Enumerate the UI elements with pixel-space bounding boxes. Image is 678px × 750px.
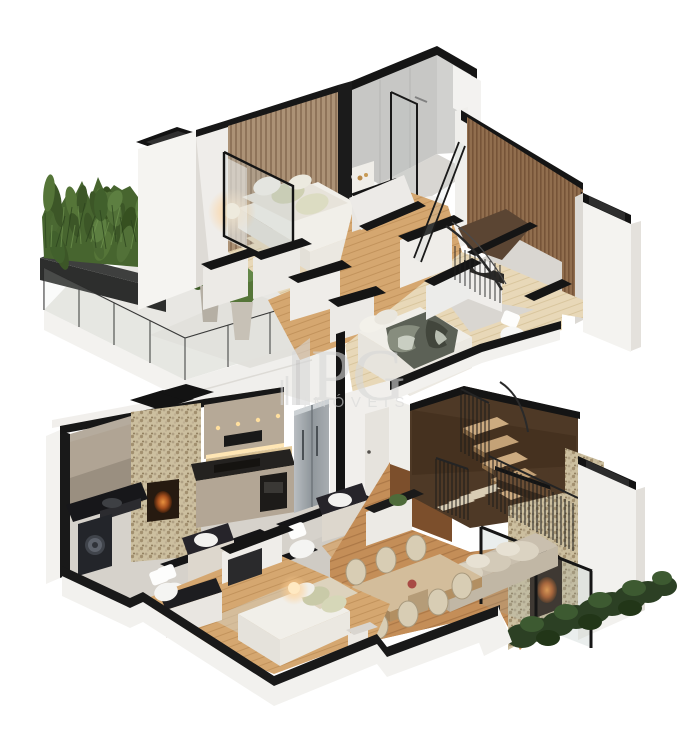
svg-text:IMÓVEIS: IMÓVEIS (303, 394, 411, 411)
